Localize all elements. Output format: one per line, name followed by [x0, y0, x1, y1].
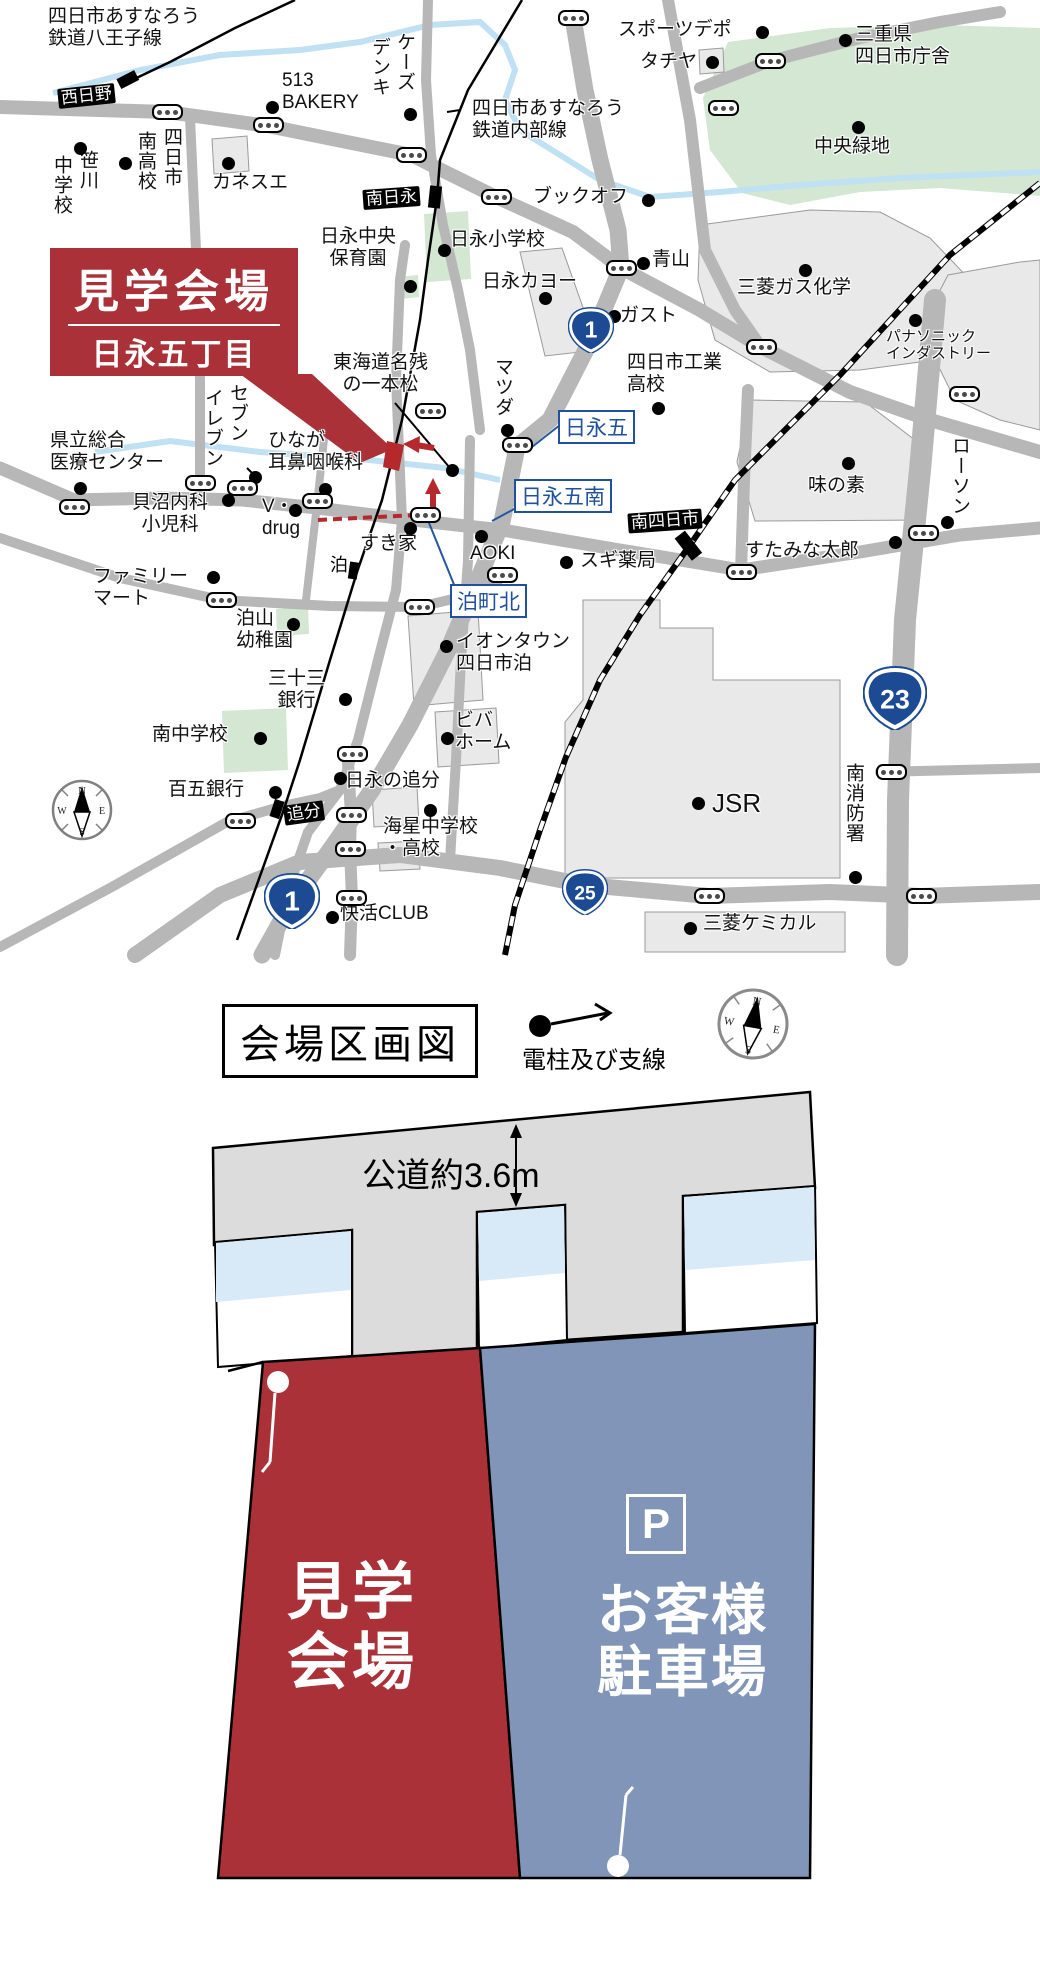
map-label: 三菱ガス化学 [737, 277, 851, 299]
map-label: 四日市 [160, 127, 182, 187]
poi-dot [684, 922, 697, 935]
traffic-signal-icon [336, 890, 367, 906]
poi-dot [440, 640, 453, 653]
traffic-signal-icon [227, 480, 258, 496]
poi-dot [404, 522, 417, 535]
map-label: 味の素 [808, 475, 865, 497]
poi-dot [404, 280, 417, 293]
pole-legend-label: 電柱及び支線 [522, 1040, 666, 1075]
traffic-signal-icon [415, 403, 446, 419]
map-label: すたみな太郎 [745, 540, 859, 562]
traffic-signal-icon [396, 147, 427, 163]
map-label: JSR [712, 788, 761, 818]
map-label: 快活CLUB [340, 903, 429, 925]
poi-dot [424, 804, 437, 817]
map-label: パナソニック インダストリー [886, 328, 991, 363]
map-label: 南中学校 [152, 724, 228, 746]
map-label: ひなが 耳鼻咽喉科 [268, 430, 363, 474]
map-label: 東海道名残 の一本松 [333, 352, 428, 396]
poi-dot [849, 871, 862, 884]
station-plate: 南四日市 [627, 508, 702, 534]
map-label: V・ drug [262, 496, 300, 540]
station-plate: 追分 [283, 800, 325, 826]
map-label: ガスト [620, 305, 677, 327]
poi-dot [326, 911, 339, 924]
poi-dot [637, 257, 650, 270]
map-label: 中央緑地 [814, 136, 890, 158]
route-shield: 23 [863, 666, 927, 735]
map-label: 海星中学校 ・高校 [383, 816, 478, 860]
traffic-signal-icon [949, 386, 980, 402]
poi-dot [941, 516, 954, 529]
parking-parcel-label: お客様 駐車場 [550, 1580, 815, 1703]
poi-dot [799, 264, 812, 277]
map-label: ファミリー マート [93, 566, 188, 610]
map-label: 日永カヨー [482, 271, 577, 293]
traffic-signal-icon [253, 117, 284, 133]
parking-icon: P [626, 1494, 686, 1554]
route-shield: 1 [568, 307, 614, 358]
svg-text:1: 1 [585, 317, 598, 343]
poi-dot [222, 157, 235, 170]
traffic-signal-icon [906, 888, 937, 904]
map-label: 笹川 [76, 150, 98, 190]
poi-dot [438, 244, 451, 257]
traffic-signal-icon [185, 475, 216, 491]
svg-text:23: 23 [880, 685, 910, 715]
station-plate: 南日永 [362, 186, 420, 210]
traffic-signal-icon [302, 493, 333, 509]
map-label: 南高校 [134, 131, 156, 191]
poi-dot [706, 56, 719, 69]
map-label: 南消防署 [842, 763, 864, 843]
traffic-signal-icon [558, 10, 589, 26]
traffic-signal-icon [708, 100, 739, 116]
traffic-signal-icon [206, 592, 237, 608]
map-label: タチヤ [640, 51, 697, 73]
traffic-signal-icon [336, 807, 367, 823]
poi-dot [74, 142, 87, 155]
map-label: すき家 [360, 533, 417, 555]
traffic-signal-icon [694, 888, 725, 904]
traffic-signal-icon [59, 499, 90, 515]
intersection-box: 泊町北 [450, 584, 527, 618]
traffic-signal-icon [225, 813, 256, 829]
poi-dot [207, 571, 220, 584]
map-label: ビバ ホーム [455, 710, 511, 754]
poi-dot [404, 108, 417, 121]
map-label: ローソン [948, 436, 970, 516]
poi-dot [289, 504, 302, 517]
map-label: 百五銀行 [168, 779, 244, 801]
poi-dot [269, 786, 282, 799]
route-shield: 1 [264, 873, 320, 934]
traffic-signal-icon [481, 189, 512, 205]
traffic-signal-icon [152, 104, 183, 120]
map-label: 三菱ケミカル [703, 913, 816, 935]
callout-divider [68, 324, 280, 326]
poi-dot [842, 457, 855, 470]
traffic-signal-icon [335, 841, 366, 857]
traffic-signal-icon [606, 260, 637, 276]
traffic-signal-icon [502, 437, 533, 453]
poi-dot [475, 530, 488, 543]
svg-text:25: 25 [574, 884, 596, 905]
location-map-page: N E S W [0, 0, 1040, 1984]
venue-callout-subtitle: 日永五丁目 [50, 329, 298, 374]
map-label: 日永中央 保育園 [320, 226, 396, 270]
poi-dot [652, 402, 665, 415]
venue-parcel-label: 見学 会場 [252, 1558, 452, 1698]
map-label: 日永の追分 [345, 770, 440, 792]
poi-dot [441, 732, 454, 745]
poi-dot [334, 772, 347, 785]
map-label: ケーズ [393, 32, 415, 92]
map-label: 泊山 幼稚園 [236, 608, 293, 652]
svg-text:1: 1 [284, 885, 300, 916]
map-label: 三重県 四日市庁舎 [855, 24, 950, 68]
poi-dot [756, 26, 769, 39]
poi-dot [692, 797, 705, 810]
map-label: 日永小学校 [450, 229, 545, 251]
map-label: マツダ [491, 357, 513, 417]
map-label: カネスエ [212, 172, 288, 194]
map-label: 中学校 [50, 155, 72, 215]
traffic-signal-icon [876, 764, 907, 780]
route-shield: 25 [562, 869, 608, 920]
poi-dot [501, 424, 514, 437]
map-label: イレブン [201, 388, 223, 468]
poi-dot [539, 292, 552, 305]
intersection-box: 日永五南 [514, 479, 612, 513]
map-label: スギ薬局 [580, 550, 656, 572]
traffic-signal-icon [404, 599, 435, 615]
traffic-signal-icon [755, 53, 786, 69]
poi-dot [889, 536, 902, 549]
poi-dot [339, 693, 352, 706]
map-label: 四日市あすなろう 鉄道八王子線 [48, 6, 200, 50]
traffic-signal-icon [908, 525, 939, 541]
traffic-signal-icon [726, 564, 757, 580]
station-plate: 西日野 [57, 83, 116, 109]
map-label: 四日市工業 高校 [627, 352, 722, 396]
road-width-label: 公道約3.6m [362, 1148, 540, 1197]
station-name: 泊 [325, 555, 351, 573]
poi-dot [852, 121, 865, 134]
venue-callout-title: 見学会場 [50, 255, 298, 320]
map-label: 四日市あすなろう 鉄道内部線 [472, 98, 624, 142]
map-label: 県立総合 医療センター [50, 430, 164, 474]
poi-dot [560, 556, 573, 569]
map-label: 貝沼内科 小児科 [132, 492, 208, 536]
map-label: スポーツデポ [618, 19, 732, 41]
traffic-signal-icon [410, 507, 441, 523]
map-label: セブン [226, 383, 248, 443]
traffic-signal-icon [487, 567, 518, 583]
poi-dot [909, 314, 922, 327]
poi-dot [74, 482, 87, 495]
poi-dot [254, 732, 267, 745]
poi-dot [642, 194, 655, 207]
intersection-box: 日永五 [558, 410, 635, 444]
poi-dot [446, 464, 459, 477]
poi-dot [839, 34, 852, 47]
poi-dot [119, 157, 132, 170]
map-label: AOKI [470, 543, 515, 565]
map-label: 三十三 銀行 [268, 668, 325, 712]
poi-dot [266, 101, 279, 114]
map-label: ブックオフ [533, 186, 628, 208]
map-label: イオンタウン 四日市泊 [456, 631, 570, 675]
map-label: 青山 [652, 249, 690, 271]
map-label: 513 BAKERY [282, 70, 359, 114]
map-label: デンキ [368, 37, 390, 97]
traffic-signal-icon [337, 746, 368, 762]
venue-callout: 見学会場 日永五丁目 [50, 248, 298, 376]
poi-dot [287, 618, 300, 631]
site-plan-title: 会場区画図 [222, 1004, 478, 1078]
traffic-signal-icon [746, 339, 777, 355]
